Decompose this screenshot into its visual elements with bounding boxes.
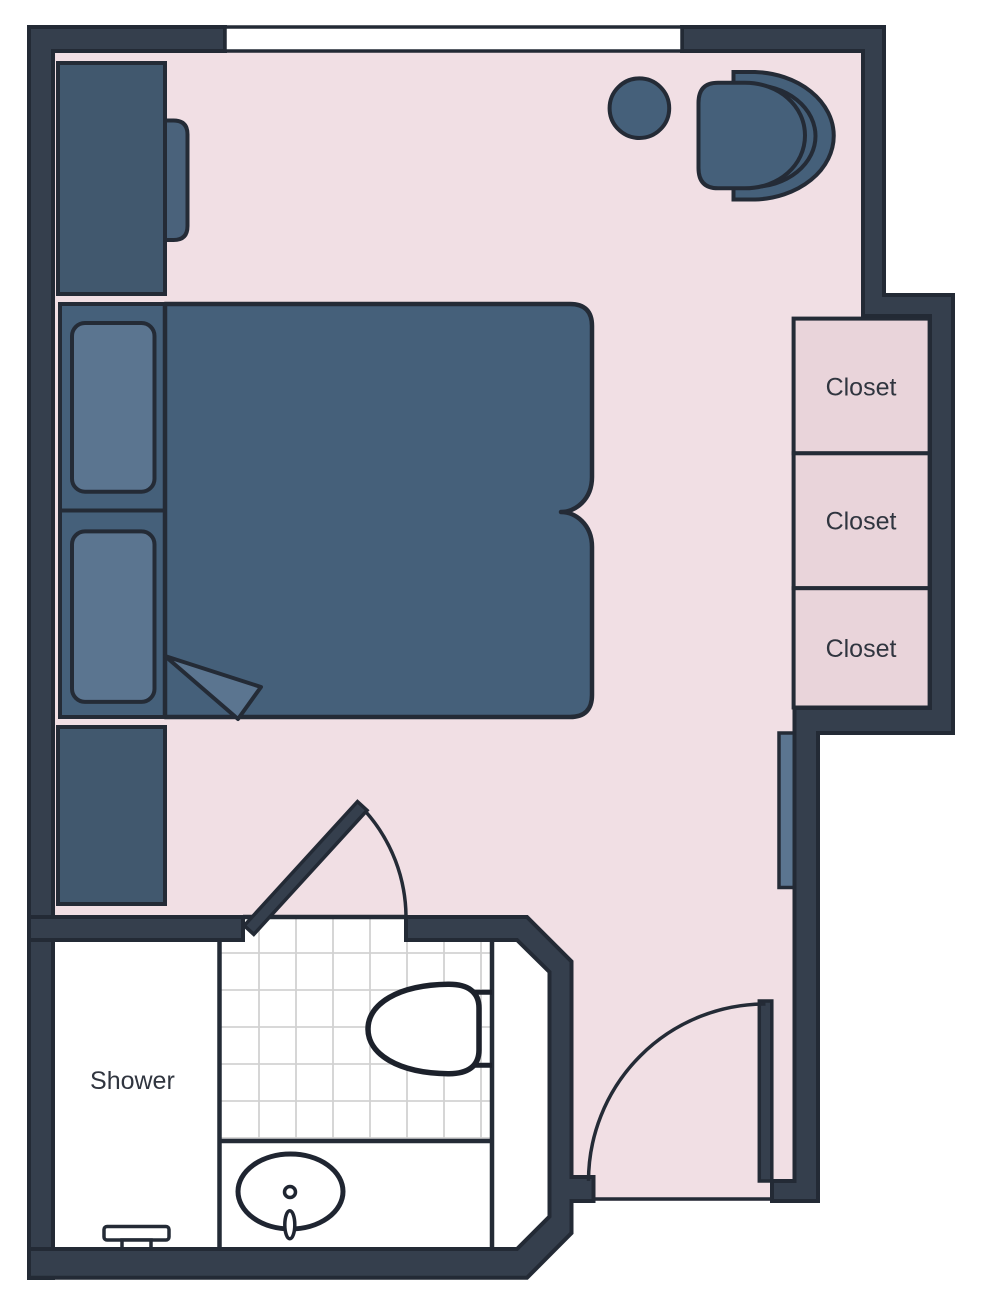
svg-text:Shower: Shower <box>90 1067 175 1095</box>
svg-text:Closet: Closet <box>826 635 897 663</box>
svg-text:Closet: Closet <box>826 374 897 402</box>
svg-text:Closet: Closet <box>826 508 897 536</box>
